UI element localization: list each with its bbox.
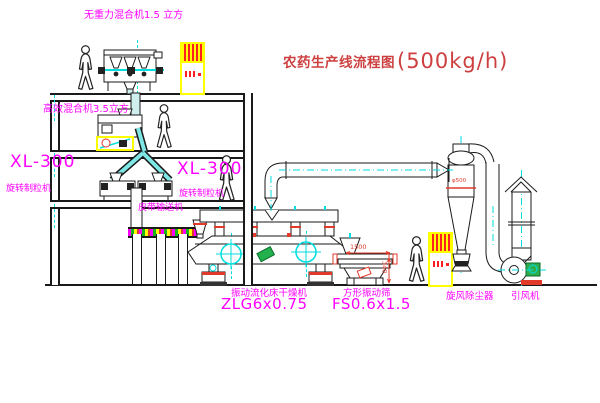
- title-capacity: (500kg/h): [397, 49, 508, 73]
- worker-figure: [404, 236, 429, 285]
- control-cabinet-1: [180, 42, 205, 95]
- label-dryer-model: ZLG6x0.75: [221, 297, 308, 312]
- label-top-mixer: 无重力混合机1.5 立方: [84, 11, 183, 21]
- fluid-bed-dryer-drawing: [183, 206, 353, 288]
- building-column-right: [243, 93, 253, 285]
- cabinet-indicator: [198, 73, 201, 76]
- worker-figure: [71, 45, 100, 93]
- label-center-granulator-name: 旋转制粒机: [179, 190, 224, 199]
- conveyor-leg: [132, 234, 142, 284]
- label-fan: 引风机: [511, 292, 540, 302]
- worker-figure: [152, 104, 176, 151]
- label-belt-conveyor: 皮带输送机: [138, 204, 183, 213]
- induced-draft-fan-drawing: [498, 170, 548, 288]
- label-center-granulator-model: XL-300: [177, 161, 242, 178]
- dimension-sieve-length: 1500: [350, 244, 367, 251]
- cabinet-markings: [185, 71, 197, 77]
- building-column-left: [50, 93, 60, 285]
- title-text: 农药生产线流程图: [283, 51, 395, 71]
- label-left-granulator-name: 旋转制粒机: [6, 185, 51, 194]
- centerline: [54, 204, 55, 228]
- cabinet-hatch: [182, 44, 203, 63]
- label-sieve-model: FS0.6x1.5: [332, 297, 411, 312]
- dimension-sieve-height: 340: [381, 261, 388, 273]
- exhaust-duct-drawing: [255, 136, 455, 216]
- process-flow-diagram: 农药生产线流程图 (500kg/h) 无重力混合机1.5 立方 高效混合机3.5…: [0, 0, 600, 403]
- diagram-title: 农药生产线流程图 (500kg/h): [283, 49, 508, 73]
- label-left-granulator-model: XL-300: [10, 154, 75, 171]
- label-floor2-mixer: 高效混合机3.5立方: [43, 105, 129, 115]
- gravity-free-mixer-drawing: [100, 44, 162, 94]
- vibrating-sieve-drawing: [330, 232, 402, 288]
- label-cyclone: 旋风除尘器: [446, 292, 494, 302]
- conveyor-leg: [156, 234, 166, 284]
